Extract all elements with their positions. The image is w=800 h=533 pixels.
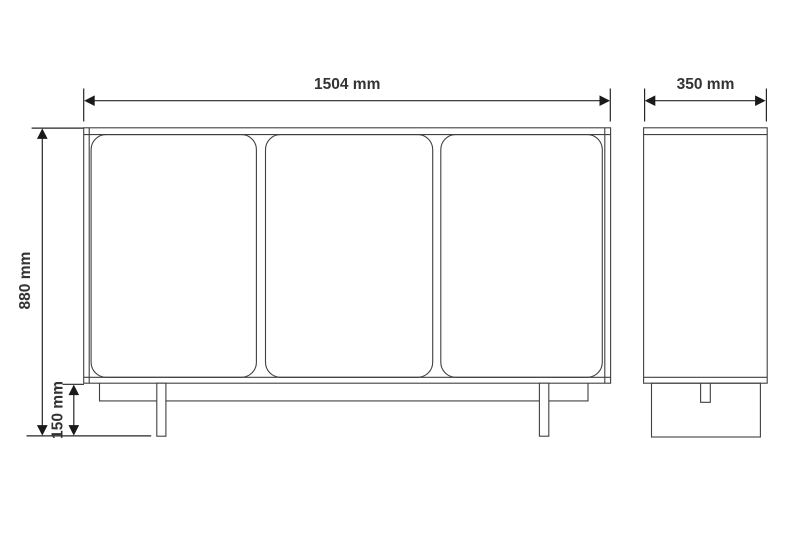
svg-text:350 mm: 350 mm <box>677 76 735 93</box>
svg-text:150 mm: 150 mm <box>49 381 66 439</box>
svg-text:880 mm: 880 mm <box>17 252 34 310</box>
svg-text:1504 mm: 1504 mm <box>314 76 380 93</box>
